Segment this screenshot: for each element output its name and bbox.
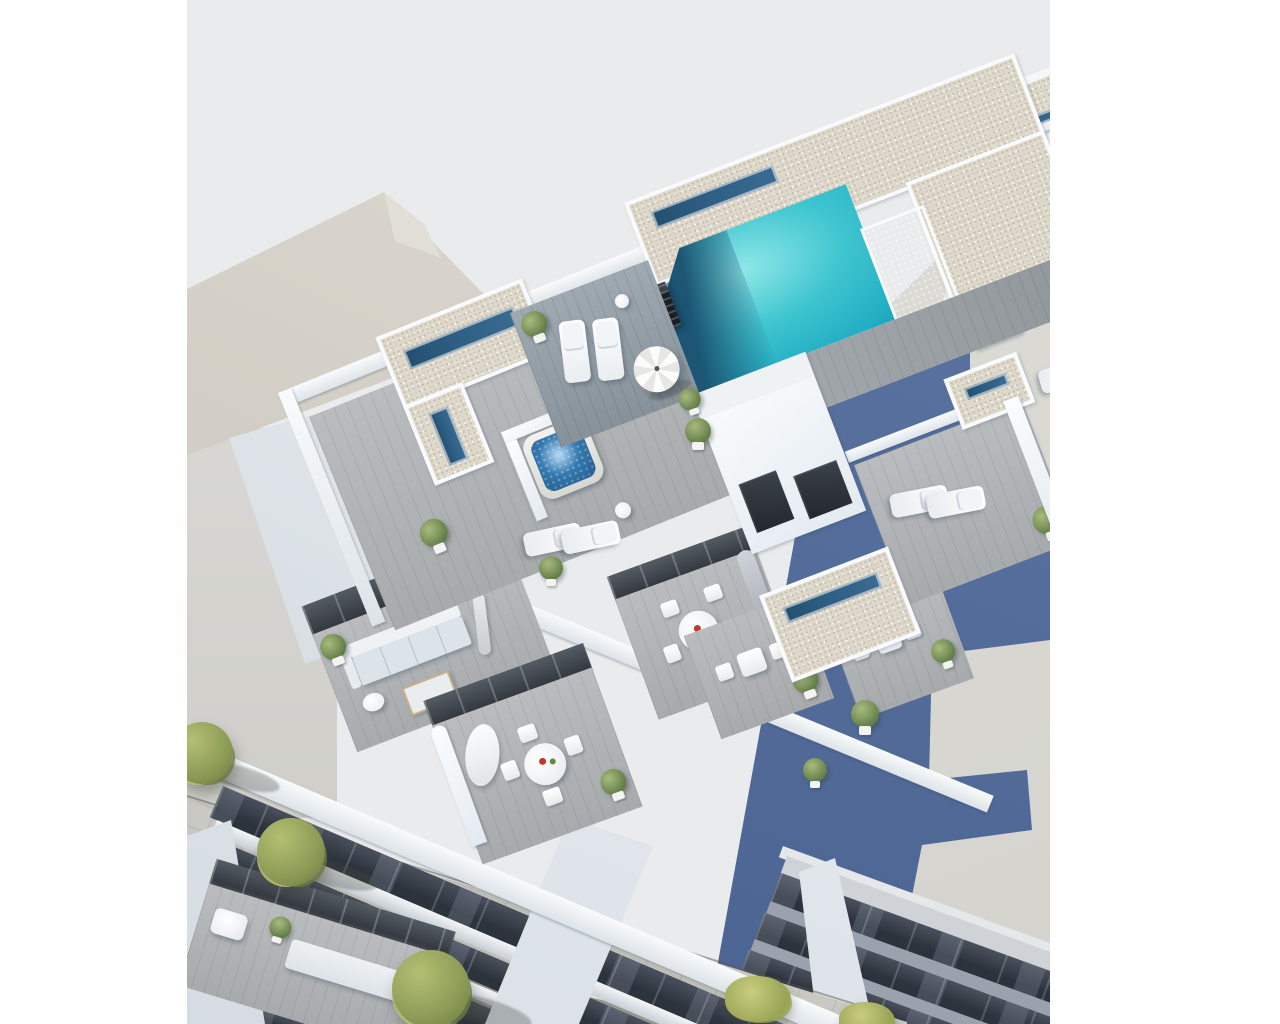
bush bbox=[725, 976, 791, 1022]
render-image bbox=[0, 0, 1280, 1024]
street-tree bbox=[257, 818, 325, 886]
plant bbox=[685, 418, 711, 444]
plant bbox=[539, 556, 563, 580]
plant bbox=[803, 758, 827, 782]
plant bbox=[851, 700, 879, 728]
street-tree bbox=[392, 950, 470, 1024]
scene bbox=[187, 0, 1050, 1024]
